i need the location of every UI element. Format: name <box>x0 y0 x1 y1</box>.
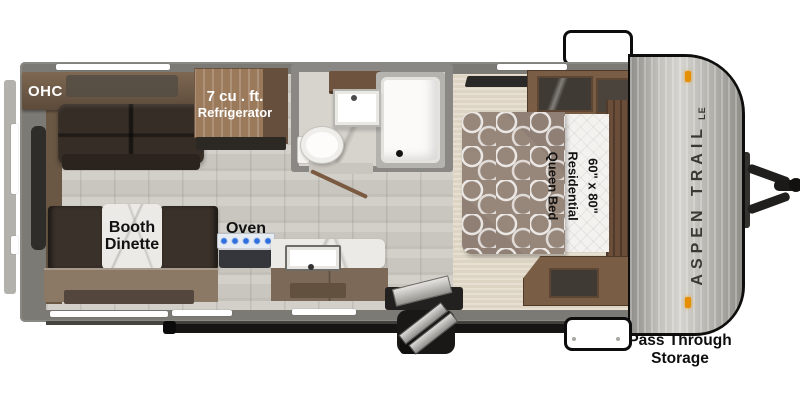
booth-base-inset <box>64 290 194 304</box>
toilet <box>300 126 344 164</box>
bed-type-label: Residential <box>566 151 581 220</box>
oven-label: Oven <box>220 220 272 237</box>
wardrobe-bottom-door <box>549 268 599 298</box>
screw-icon <box>616 337 620 341</box>
floorplan-canvas: OHC 7 cu . ft. Refrigerator 60" x 80" Re… <box>0 0 800 400</box>
pass-through-label-line1: Pass Through <box>628 332 731 349</box>
awning-end-cap <box>163 321 176 334</box>
overhead-cabinet-underside <box>66 75 178 97</box>
window-rear-lower <box>11 236 18 254</box>
shower-drain-icon <box>396 150 403 157</box>
bathroom-faucet-icon <box>351 95 357 101</box>
booth-label-line2: Dinette <box>105 236 159 253</box>
pass-through-label-line2: Storage <box>651 350 709 367</box>
sofa-front <box>62 154 200 170</box>
kitchen-cabinet-inset <box>290 283 346 298</box>
bathroom-sink <box>333 89 381 127</box>
booth-label-line1: Booth <box>109 219 155 236</box>
hitch-arm-lower <box>746 191 790 215</box>
bed-size-label: 60" x 80" <box>586 158 601 214</box>
marker-light-bottom-icon <box>685 297 691 308</box>
wardrobe-top-mirror <box>537 76 593 112</box>
window-rear-upper <box>11 124 18 194</box>
pass-through-door-top <box>563 30 633 66</box>
brand-logo: ASPEN TRAILLE <box>689 106 707 285</box>
ohc-label: OHC <box>28 84 63 100</box>
screw-icon <box>572 337 576 341</box>
marker-light-top-icon <box>685 71 691 82</box>
brand-edition-badge: LE <box>697 106 707 120</box>
refrigerator-label: 7 cu . ft. Refrigerator <box>184 88 286 120</box>
front-cap <box>630 57 742 333</box>
window-bottom-middle <box>172 310 232 316</box>
refrigerator-label-name: Refrigerator <box>184 105 286 120</box>
awning-tube <box>168 322 568 333</box>
kitchen-faucet-icon <box>308 264 314 270</box>
oven-range <box>219 248 271 268</box>
brand-name: ASPEN TRAIL <box>689 124 706 286</box>
hitch-ball-icon <box>789 178 800 192</box>
window-bottom-left <box>50 311 168 317</box>
booth-dinette-label: Booth Dinette <box>94 219 170 254</box>
window-top-left <box>56 64 170 70</box>
rear-wall-glass <box>31 126 46 250</box>
bed-name-label: Queen Bed <box>546 152 561 221</box>
pass-through-storage-label: Pass Through Storage <box>622 332 738 368</box>
window-bottom-kitchen <box>292 309 356 315</box>
refrigerator-vent <box>196 137 286 150</box>
shower-pan <box>381 77 440 163</box>
refrigerator-label-size: 7 cu . ft. <box>184 88 286 105</box>
